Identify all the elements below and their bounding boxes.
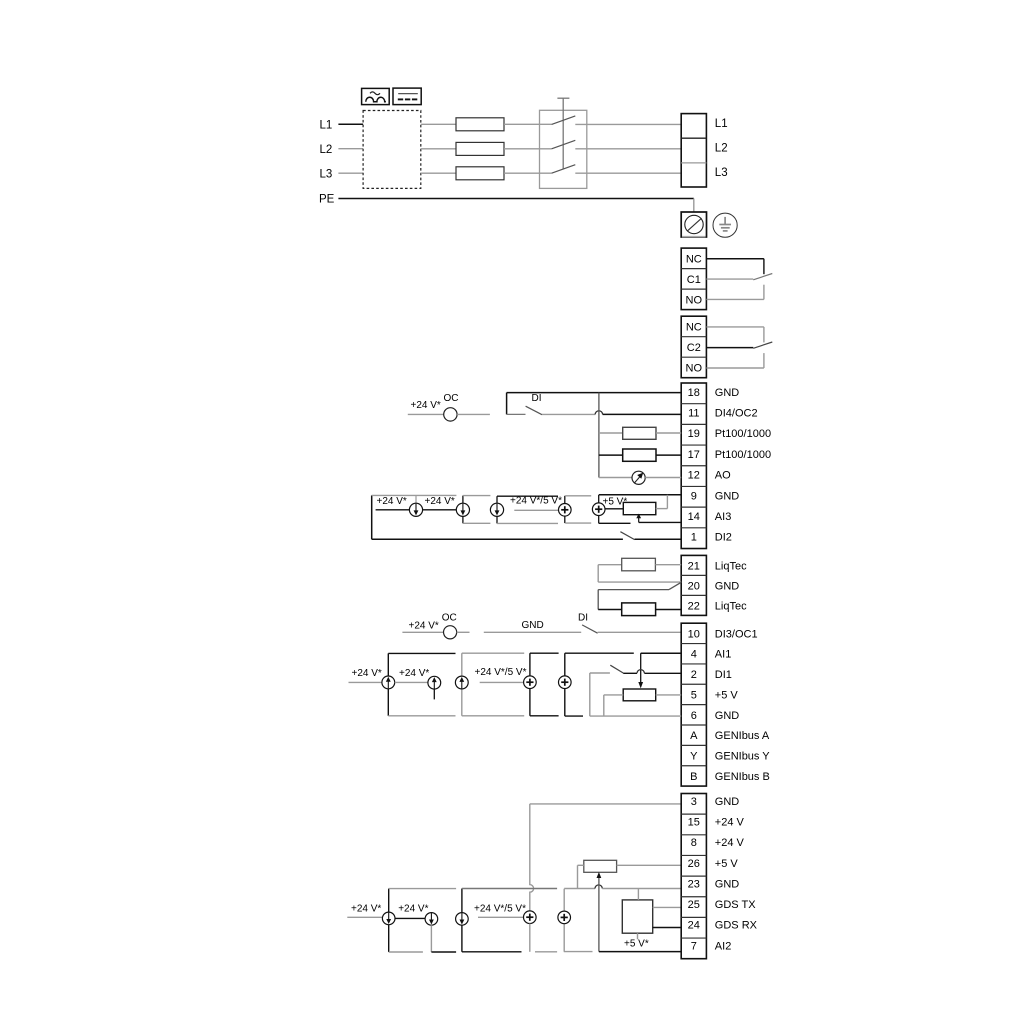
svg-text:GND: GND [715,710,740,722]
svg-text:+5 V: +5 V [715,689,739,701]
svg-text:GDS TX: GDS TX [715,899,756,911]
svg-text:GND: GND [715,878,740,890]
svg-text:Y: Y [690,751,698,763]
svg-text:GND: GND [522,620,544,631]
svg-text:DI2: DI2 [715,532,732,544]
svg-text:OC: OC [442,612,457,623]
svg-text:AO: AO [715,470,731,482]
svg-text:23: 23 [688,878,700,890]
svg-text:GENIbus Y: GENIbus Y [715,751,770,763]
svg-text:+24 V*: +24 V* [398,904,428,915]
svg-text:B: B [690,771,697,783]
svg-text:6: 6 [691,710,697,722]
svg-text:8: 8 [691,837,697,849]
svg-text:26: 26 [688,858,700,870]
svg-text:DI4/OC2: DI4/OC2 [715,408,758,420]
svg-text:PE: PE [319,194,335,206]
svg-text:+24 V*/5 V*: +24 V*/5 V* [474,904,526,915]
svg-text:5: 5 [691,689,697,701]
svg-text:AI2: AI2 [715,940,732,952]
svg-text:L1: L1 [715,118,728,130]
svg-text:+24 V*: +24 V* [425,496,455,507]
svg-text:GENIbus B: GENIbus B [715,771,770,783]
svg-text:+24 V: +24 V [715,816,745,828]
svg-text:AI1: AI1 [715,649,732,661]
svg-text:DI3/OC1: DI3/OC1 [715,628,758,640]
svg-text:NC: NC [686,253,702,265]
svg-text:20: 20 [688,580,700,592]
svg-text:15: 15 [688,816,700,828]
svg-text:GND: GND [715,490,740,502]
svg-text:GND: GND [715,796,740,808]
svg-text:25: 25 [688,899,700,911]
svg-text:DI: DI [578,612,588,623]
svg-text:+24 V: +24 V [715,837,745,849]
svg-text:2: 2 [691,669,697,681]
svg-text:12: 12 [688,470,700,482]
svg-text:19: 19 [688,428,700,440]
svg-text:21: 21 [688,560,700,572]
svg-text:+5 V*: +5 V* [624,939,649,950]
svg-text:7: 7 [691,940,697,952]
svg-text:L2: L2 [715,143,728,155]
svg-text:+5 V: +5 V [715,858,739,870]
svg-text:LiqTec: LiqTec [715,560,747,572]
svg-text:3: 3 [691,796,697,808]
svg-text:4: 4 [691,649,697,661]
svg-text:A: A [690,730,698,742]
svg-text:Pt100/1000: Pt100/1000 [715,449,771,461]
svg-text:+24 V*: +24 V* [399,668,429,679]
svg-text:+24 V*: +24 V* [377,496,407,507]
svg-text:+24 V*/5 V*: +24 V*/5 V* [475,667,527,678]
svg-text:18: 18 [688,387,700,399]
svg-text:GND: GND [715,580,740,592]
svg-text:NO: NO [686,294,703,306]
svg-text:Pt100/1000: Pt100/1000 [715,428,771,440]
svg-text:11: 11 [688,408,699,420]
svg-text:OC: OC [444,393,459,404]
svg-text:NC: NC [686,321,702,333]
svg-text:14: 14 [688,511,700,523]
svg-text:+24 V*: +24 V* [411,400,441,411]
svg-text:GND: GND [715,387,740,399]
svg-text:24: 24 [688,920,700,932]
svg-text:DI: DI [532,393,542,404]
svg-text:22: 22 [688,600,700,612]
svg-text:NO: NO [686,362,703,374]
svg-text:+24 V*: +24 V* [409,621,439,632]
svg-text:L3: L3 [715,167,728,179]
svg-text:+24 V*: +24 V* [351,904,381,915]
svg-text:10: 10 [688,628,700,640]
svg-text:9: 9 [691,490,697,502]
svg-text:L3: L3 [320,168,333,180]
svg-text:DI1: DI1 [715,669,732,681]
svg-text:+24 V*/5 V*: +24 V*/5 V* [510,496,562,507]
svg-text:AI3: AI3 [715,511,732,523]
svg-text:C1: C1 [687,274,701,286]
svg-text:GDS RX: GDS RX [715,920,758,932]
svg-text:1: 1 [691,532,697,544]
svg-text:LiqTec: LiqTec [715,600,747,612]
svg-text:C2: C2 [687,342,701,354]
svg-text:GENIbus A: GENIbus A [715,730,770,742]
svg-text:L2: L2 [320,144,333,156]
svg-text:17: 17 [688,449,700,461]
svg-text:+24 V*: +24 V* [352,668,382,679]
svg-text:L1: L1 [320,119,333,131]
